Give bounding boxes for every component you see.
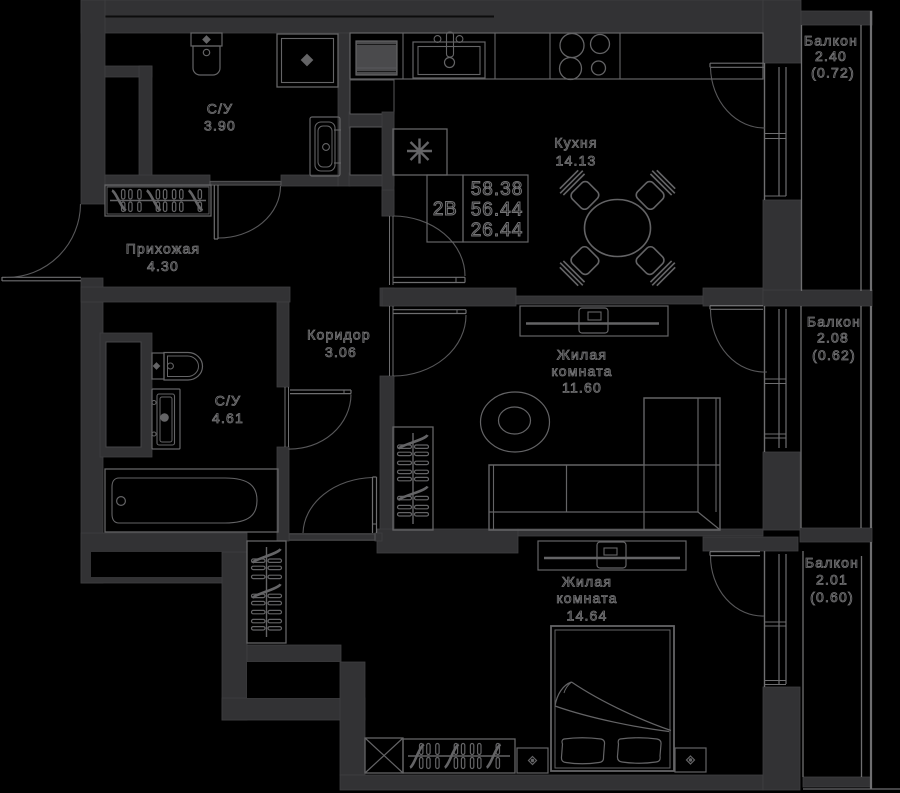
- svg-text:Балкон: Балкон: [804, 33, 858, 49]
- svg-text:4.30: 4.30: [147, 258, 179, 274]
- svg-text:2.08: 2.08: [817, 330, 849, 346]
- svg-text:3.90: 3.90: [204, 118, 236, 134]
- svg-text:56.44: 56.44: [471, 200, 524, 221]
- svg-text:(0.62): (0.62): [812, 347, 856, 363]
- svg-text:Балкон: Балкон: [807, 314, 861, 330]
- svg-text:26.44: 26.44: [471, 220, 524, 241]
- svg-text:Кухня: Кухня: [554, 135, 597, 151]
- svg-text:Балкон: Балкон: [805, 555, 859, 571]
- svg-text:комната: комната: [551, 363, 612, 379]
- svg-text:2.01: 2.01: [816, 572, 848, 588]
- svg-text:(0.60): (0.60): [810, 589, 854, 605]
- svg-text:С/У: С/У: [207, 101, 234, 117]
- svg-text:58.38: 58.38: [471, 179, 524, 200]
- svg-text:14.64: 14.64: [566, 608, 607, 624]
- svg-text:11.60: 11.60: [562, 380, 602, 396]
- svg-text:14.13: 14.13: [555, 153, 596, 169]
- svg-text:комната: комната: [556, 590, 617, 606]
- svg-text:Жилая: Жилая: [562, 574, 612, 590]
- svg-text:2.40: 2.40: [815, 48, 847, 64]
- svg-text:(0.72): (0.72): [811, 65, 855, 81]
- svg-text:3.06: 3.06: [325, 344, 357, 360]
- svg-text:Жилая: Жилая: [557, 347, 607, 363]
- svg-text:С/У: С/У: [215, 393, 242, 409]
- svg-text:2В: 2В: [433, 199, 457, 220]
- svg-text:4.61: 4.61: [212, 410, 244, 426]
- svg-text:Коридор: Коридор: [307, 327, 371, 343]
- svg-text:Прихожая: Прихожая: [126, 241, 200, 257]
